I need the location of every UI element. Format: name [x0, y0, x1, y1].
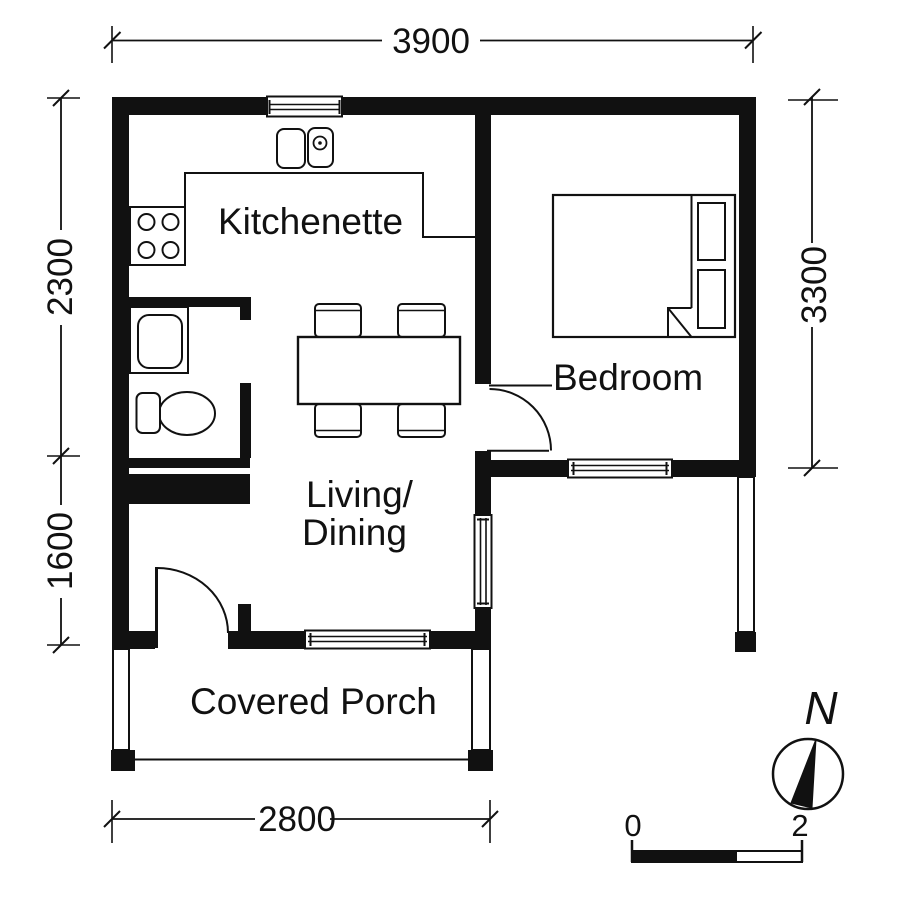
- wall-segment: [240, 297, 251, 320]
- dimension-value-right: 3300: [795, 246, 834, 324]
- dimension-value-bottom: 2800: [258, 800, 336, 839]
- porch-post: [735, 632, 756, 652]
- wall-segment: [112, 97, 129, 649]
- scale-end-label: 2: [791, 808, 808, 843]
- bedroom-door: [487, 386, 552, 451]
- dining-chair: [398, 304, 445, 337]
- entry-storage-block: [128, 474, 250, 504]
- wall-segment: [128, 458, 250, 468]
- room-label-bedroom: Bedroom: [553, 357, 703, 398]
- toilet-tank: [137, 393, 161, 433]
- floor-plan-canvas: 3900 2300 1600 3300 2800 Kitchenette Bed…: [0, 0, 900, 900]
- wall-segment: [475, 115, 491, 384]
- kitchen-sink: [277, 128, 333, 168]
- stove-burner: [139, 214, 155, 230]
- kitchenette-fixtures: [130, 128, 475, 265]
- wall-segment: [128, 297, 250, 307]
- room-label-covered-porch: Covered Porch: [190, 681, 437, 722]
- wall-segment: [475, 608, 491, 649]
- porch-column: [472, 649, 490, 750]
- window-living-south: [305, 631, 430, 649]
- wall-segment: [475, 451, 491, 515]
- north-icon: N: [804, 682, 838, 734]
- porch-structure: [111, 477, 756, 771]
- toilet-bowl: [159, 392, 215, 435]
- wall-segment: [238, 604, 251, 633]
- north-compass: N: [773, 682, 843, 809]
- scale-bar: 0 2: [624, 808, 808, 862]
- bathroom-sink-basin: [138, 315, 182, 368]
- wall-segment: [672, 460, 739, 477]
- room-label-living-line1: Living/: [306, 474, 414, 515]
- window-bedroom-south: [568, 460, 672, 478]
- bedroom-door-swing-arc: [490, 389, 552, 451]
- dining-set: [298, 304, 460, 437]
- sink-bowl-left: [277, 129, 305, 168]
- window-living-east: [475, 515, 492, 608]
- porch-column: [113, 649, 129, 750]
- bed: [553, 195, 735, 337]
- wall-segment: [491, 460, 568, 477]
- toilet: [137, 392, 216, 435]
- bathroom-fixtures: [130, 307, 215, 435]
- wall-segment: [112, 97, 267, 115]
- porch-post: [111, 750, 135, 771]
- dimension-value-top: 3900: [392, 22, 470, 61]
- wall-segment: [112, 631, 155, 649]
- scale-start-label: 0: [624, 808, 641, 843]
- room-label-kitchenette: Kitchenette: [218, 201, 403, 242]
- dining-table: [298, 337, 460, 404]
- floor-plan-drawing: 3900 2300 1600 3300 2800 Kitchenette Bed…: [0, 0, 900, 900]
- dimension-value-left-upper: 2300: [41, 238, 80, 316]
- wall-segment: [739, 97, 756, 477]
- dining-chair: [315, 404, 361, 437]
- pillow: [698, 203, 725, 260]
- front-door: [157, 567, 229, 648]
- wall-segment: [240, 383, 251, 458]
- stove-burner: [163, 214, 179, 230]
- front-door-swing-arc: [157, 568, 228, 633]
- stove-burner: [139, 242, 155, 258]
- porch-column: [738, 477, 754, 632]
- window-kitchen-north: [267, 97, 342, 117]
- porch-post: [468, 750, 493, 771]
- dining-chair: [315, 304, 361, 337]
- room-label-living-line2: Dining: [302, 512, 407, 553]
- scale-bar-filled: [632, 851, 737, 862]
- pillow: [698, 270, 725, 328]
- wall-segment: [342, 97, 756, 115]
- wall-segment: [228, 631, 305, 649]
- dimension-value-left-lower: 1600: [41, 512, 80, 590]
- dining-chair: [398, 404, 445, 437]
- stove: [130, 207, 185, 265]
- stove-burner: [163, 242, 179, 258]
- sink-faucet-dot: [318, 141, 322, 145]
